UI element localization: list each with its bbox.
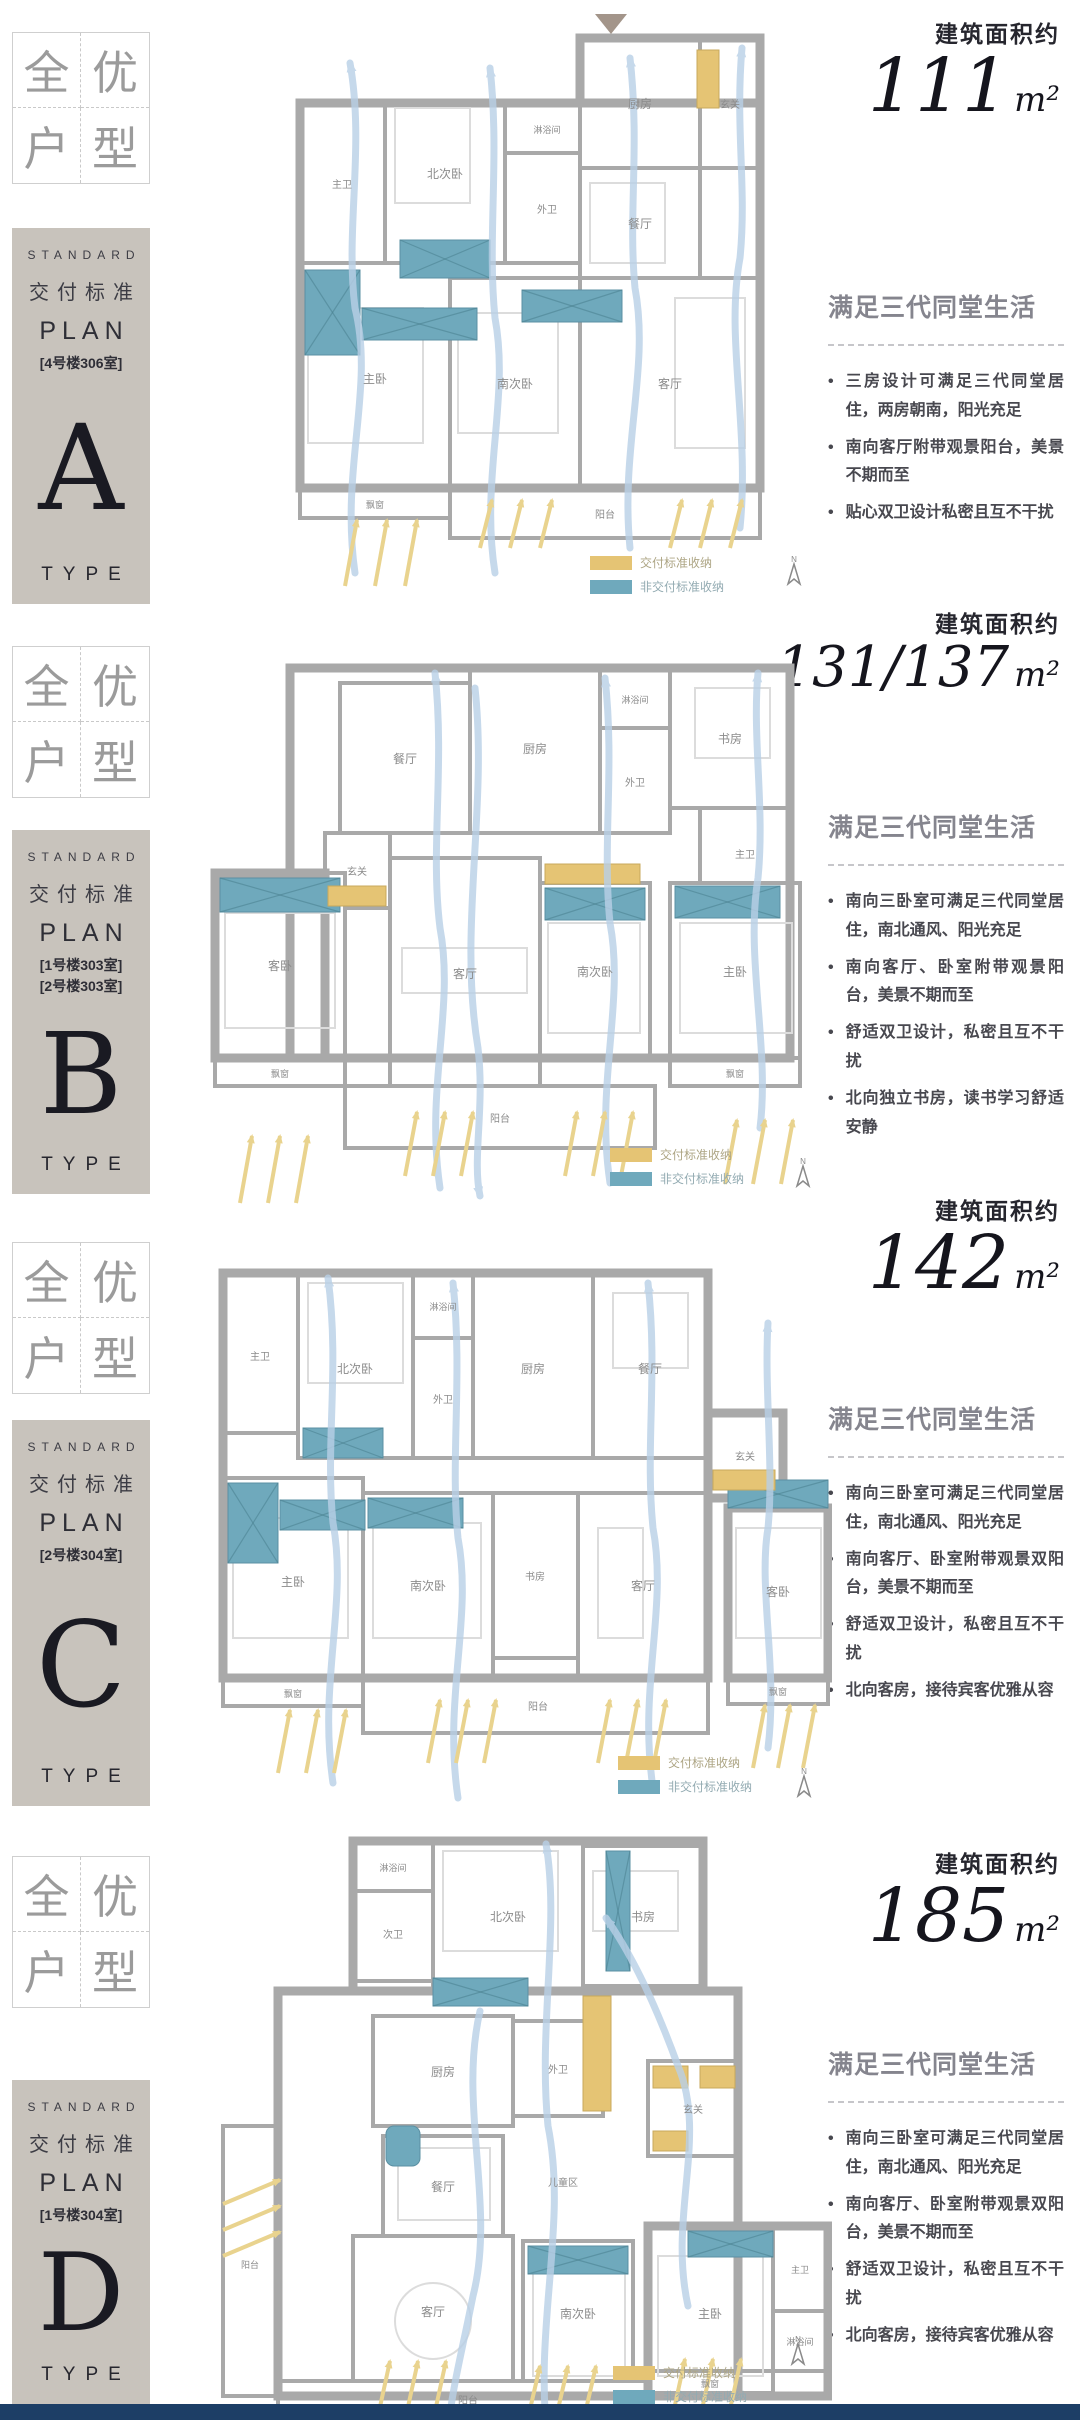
room-label-north-bedroom: 北次卧: [427, 167, 463, 181]
north-compass-icon: N: [788, 555, 800, 584]
room-label-bay-window: 飘窗: [769, 1686, 787, 1697]
legend-nonstandard-label: 非交付标准收纳: [660, 1171, 744, 1186]
list-item: •南向三卧室可满足三代同堂居住，南北通风、阳光充足: [828, 2125, 1064, 2183]
room-label-south-bedroom: 南次卧: [410, 1578, 446, 1593]
card-type-label: TYPE: [31, 564, 131, 586]
card-room-note: [4号楼306室]: [40, 354, 122, 373]
area-unit: m²: [1014, 80, 1060, 120]
legend-standard-swatch: [618, 1756, 660, 1770]
card-plan-label: PLAN: [33, 317, 128, 346]
list-item: •北向客房，接待宾客优雅从容: [828, 2322, 1064, 2351]
list-item: •南向客厅附带观景阳台，美景不期而至: [828, 434, 1064, 492]
list-item: •舒适双卫设计，私密且互不干扰: [828, 1019, 1064, 1077]
list-item: •南向三卧室可满足三代同堂居住，南北通风、阳光充足: [828, 888, 1064, 946]
bullet-list: •南向三卧室可满足三代同堂居住，南北通风、阳光充足 •南向客厅、卧室附带观景阳台…: [828, 888, 1064, 1142]
walls: [300, 38, 760, 538]
plan-legend: 交付标准收纳 非交付标准收纳: [618, 1755, 752, 1794]
quad-char: 优: [81, 647, 149, 722]
bullet-text: 南向三卧室可满足三代同堂居住，南北通风、阳光充足: [846, 2125, 1064, 2183]
bullet-list: •南向三卧室可满足三代同堂居住，南北通风、阳光充足 •南向客厅、卧室附带观景双阳…: [828, 1480, 1064, 1706]
type-letter: A: [38, 373, 123, 564]
legend-nonstandard-swatch: [613, 2390, 655, 2404]
room-label-master-bath: 主卫: [735, 849, 755, 861]
room-label-master-bedroom: 主卧: [723, 965, 747, 979]
list-item: •南向客厅、卧室附带观景双阳台，美景不期而至: [828, 2191, 1064, 2249]
room-label-study: 书房: [525, 1570, 545, 1583]
bullet-text: 南向三卧室可满足三代同堂居住，南北通风、阳光充足: [846, 1480, 1064, 1538]
legend-standard-label: 交付标准收纳: [660, 1147, 732, 1162]
bullet-text: 舒适双卫设计，私密且互不干扰: [846, 1019, 1064, 1077]
quad-char: 户: [13, 1318, 81, 1393]
bullet-list: •三房设计可满足三代同堂居住，两房朝南，阳光充足 •南向客厅附带观景阳台，美景不…: [828, 368, 1064, 528]
quad-char: 户: [13, 108, 81, 183]
footer-accent-bar: [0, 2404, 1080, 2420]
plan-legend: 交付标准收纳 非交付标准收纳: [590, 555, 724, 594]
room-label-foyer: 玄关: [347, 865, 367, 878]
card-standard-label: STANDARD: [21, 1440, 140, 1454]
room-label-study: 书房: [631, 1909, 655, 1924]
blurb-headline: 满足三代同堂生活: [828, 808, 1064, 844]
bullet-text: 舒适双卫设计，私密且互不干扰: [846, 2256, 1064, 2314]
legend-standard-swatch: [613, 2366, 655, 2380]
card-standard-label: STANDARD: [21, 2100, 140, 2114]
floor-plan-b: 餐厅 厨房 淋浴间 外卫 书房 主卫 玄关 客卧 客厅 南次卧 主卧 阳台 飘窗…: [140, 628, 830, 1212]
bullet-text: 北向客房，接待宾客优雅从容: [846, 1677, 1054, 1706]
list-item: •贴心双卫设计私密且互不干扰: [828, 499, 1064, 528]
bullet-list: •南向三卧室可满足三代同堂居住，南北通风、阳光充足 •南向客厅、卧室附带观景双阳…: [828, 2125, 1064, 2351]
area-value: 142: [868, 1220, 1009, 1306]
quad-char: 户: [13, 722, 81, 797]
legend-standard-label: 交付标准收纳: [663, 2365, 735, 2380]
floorplan-flyer: 全 优 户 型 STANDARD 交付标准 PLAN [4号楼306室] A T…: [0, 0, 1080, 2420]
room-label-balcony: 阳台: [528, 1700, 548, 1713]
card-delivery-label: 交付标准: [21, 276, 141, 305]
area-value: 111: [868, 43, 1009, 129]
room-label-guest-bedroom: 客卧: [268, 958, 292, 973]
card-room-note: [1号楼304室]: [40, 2206, 122, 2225]
room-label-study: 书房: [718, 731, 742, 746]
card-room-note: [1号楼303室]: [40, 956, 122, 975]
bullet-text: 贴心双卫设计私密且互不干扰: [846, 499, 1054, 528]
quad-char: 全: [13, 1243, 81, 1318]
card-delivery-label: 交付标准: [21, 1468, 141, 1497]
blurb-headline: 满足三代同堂生活: [828, 288, 1064, 324]
type-letter: C: [36, 1565, 126, 1766]
plan-legend: 交付标准收纳 非交付标准收纳: [610, 1147, 744, 1186]
floor-plan-c: 主卫 北次卧 淋浴间 外卫 厨房 餐厅 玄关 主卧 南次卧 书房 客厅 客卧 阳…: [128, 1228, 832, 1812]
room-label-balcony: 阳台: [595, 508, 615, 521]
room-label-shower: 淋浴间: [379, 1862, 406, 1873]
bullet-text: 三房设计可满足三代同堂居住，两房朝南，阳光充足: [846, 368, 1064, 426]
room-label-bay-window: 飘窗: [726, 1068, 744, 1079]
bullet-text: 南向客厅附带观景阳台，美景不期而至: [846, 434, 1064, 492]
legend-standard-swatch: [590, 556, 632, 570]
card-type-label: TYPE: [31, 2364, 131, 2386]
card-standard-label: STANDARD: [21, 850, 140, 864]
area-unit: m²: [1014, 1910, 1060, 1950]
room-label-shower: 淋浴间: [533, 124, 560, 135]
direction-triangle-icon: [595, 14, 627, 34]
type-letter: D: [38, 2225, 125, 2364]
card-plan-label: PLAN: [33, 919, 128, 948]
plan-card-b: STANDARD 交付标准 PLAN [1号楼303室] [2号楼303室] B…: [12, 830, 150, 1194]
plan-card-a: STANDARD 交付标准 PLAN [4号楼306室] A TYPE: [12, 228, 150, 604]
bullet-text: 北向客房，接待宾客优雅从容: [846, 2322, 1054, 2351]
room-label-dining: 餐厅: [393, 751, 417, 766]
room-label-south-bedroom: 南次卧: [497, 376, 533, 391]
list-item: •南向客厅、卧室附带观景双阳台，美景不期而至: [828, 1546, 1064, 1604]
list-item: •舒适双卫设计，私密且互不干扰: [828, 2256, 1064, 2314]
legend-nonstandard-swatch: [618, 1780, 660, 1794]
dashed-divider: [828, 1456, 1064, 1458]
card-delivery-label: 交付标准: [21, 2128, 141, 2157]
room-label-north-bedroom: 北次卧: [337, 1362, 373, 1376]
room-label-guest-bath: 外卫: [625, 777, 645, 789]
room-label-bay-window: 飘窗: [284, 1688, 302, 1699]
room-label-foyer: 玄关: [720, 98, 740, 111]
bullet-text: 舒适双卫设计，私密且互不干扰: [846, 1611, 1064, 1669]
dashed-divider: [828, 864, 1064, 866]
room-label-master-bath: 主卫: [332, 179, 352, 191]
bullet-text: 南向三卧室可满足三代同堂居住，南北通风、阳光充足: [846, 888, 1064, 946]
blurb-a: 满足三代同堂生活 •三房设计可满足三代同堂居住，两房朝南，阳光充足 •南向客厅附…: [828, 288, 1064, 536]
legend-standard-label: 交付标准收纳: [668, 1755, 740, 1770]
quad-char: 全: [13, 33, 81, 108]
list-item: •三房设计可满足三代同堂居住，两房朝南，阳光充足: [828, 368, 1064, 426]
bullet-text: 北向独立书房，读书学习舒适安静: [846, 1085, 1064, 1143]
blurb-headline: 满足三代同堂生活: [828, 1400, 1064, 1436]
room-label-master-bedroom: 主卧: [363, 372, 387, 386]
card-standard-label: STANDARD: [21, 248, 140, 262]
room-label-balcony: 阳台: [241, 2259, 259, 2270]
floor-plan-a: 主卫 北次卧 淋浴间 外卫 厨房 玄关 餐厅 主卧 南次卧 客厅 阳台 飘窗 交…: [150, 8, 830, 600]
room-label-master-bedroom: 主卧: [281, 1575, 305, 1589]
dashed-divider: [828, 344, 1064, 346]
legend-nonstandard-label: 非交付标准收纳: [668, 1779, 752, 1794]
room-label-kitchen: 厨房: [431, 2064, 455, 2079]
type-letter: B: [40, 996, 122, 1154]
room-label-kitchen: 厨房: [628, 96, 652, 111]
north-compass-icon: N: [797, 1157, 809, 1186]
list-item: •南向客厅、卧室附带观景阳台，美景不期而至: [828, 954, 1064, 1012]
room-label-dining: 餐厅: [638, 1361, 662, 1376]
card-type-label: TYPE: [31, 1766, 131, 1788]
card-room-note: [2号楼303室]: [40, 977, 122, 996]
card-plan-label: PLAN: [33, 1509, 128, 1538]
room-label-master-bath: 主卫: [250, 1351, 270, 1363]
room-label-guest-bath: 外卫: [537, 204, 557, 216]
list-item: •北向独立书房，读书学习舒适安静: [828, 1085, 1064, 1143]
quad-char: 优: [81, 33, 149, 108]
legend-nonstandard-label: 非交付标准收纳: [640, 579, 724, 594]
storage-standard: [713, 1470, 775, 1490]
blurb-headline: 满足三代同堂生活: [828, 2045, 1064, 2081]
quad-char: 型: [81, 108, 149, 183]
bullet-text: 南向客厅、卧室附带观景双阳台，美景不期而至: [846, 2191, 1064, 2249]
room-label-kitchen: 厨房: [523, 741, 547, 756]
quad-char: 全: [13, 1857, 81, 1932]
area-unit: m²: [1014, 655, 1060, 695]
quality-badge: 全 优 户 型: [12, 646, 150, 798]
room-label-second-bath: 次卫: [383, 1928, 403, 1941]
room-label-foyer: 玄关: [683, 2103, 703, 2116]
quad-char: 型: [81, 722, 149, 797]
list-item: •南向三卧室可满足三代同堂居住，南北通风、阳光充足: [828, 1480, 1064, 1538]
dashed-divider: [828, 2101, 1064, 2103]
floor-plan-d: 淋浴间 次卫 北次卧 书房 厨房 外卫 玄关 餐厅 儿童区 客厅 南次卧 主卧 …: [128, 1826, 832, 2420]
card-plan-label: PLAN: [33, 2169, 128, 2198]
room-label-bay-window: 飘窗: [271, 1068, 289, 1079]
room-label-living: 客厅: [421, 2304, 445, 2319]
storage-standard: [697, 50, 719, 108]
list-item: •舒适双卫设计，私密且互不干扰: [828, 1611, 1064, 1669]
room-label-north-bedroom: 北次卧: [490, 1910, 526, 1924]
card-room-note: [2号楼304室]: [40, 1546, 122, 1565]
room-label-shower: 淋浴间: [621, 694, 648, 705]
area-unit: m²: [1014, 1257, 1060, 1297]
blurb-c: 满足三代同堂生活 •南向三卧室可满足三代同堂居住，南北通风、阳光充足 •南向客厅…: [828, 1400, 1064, 1714]
blurb-d: 满足三代同堂生活 •南向三卧室可满足三代同堂居住，南北通风、阳光充足 •南向客厅…: [828, 2045, 1064, 2359]
area-value: 185: [868, 1873, 1009, 1959]
walls: [223, 1841, 828, 2416]
card-type-label: TYPE: [31, 1154, 131, 1176]
legend-nonstandard-swatch: [590, 580, 632, 594]
room-label-master-bath: 主卫: [791, 2264, 809, 2275]
room-label-guest-bath: 外卫: [433, 1394, 453, 1406]
quad-char: 户: [13, 1932, 81, 2007]
room-label-kids-zone: 儿童区: [548, 2176, 578, 2189]
room-label-south-bedroom: 南次卧: [577, 964, 613, 979]
room-label-bay-window: 飘窗: [366, 499, 384, 510]
room-label-guest-bath: 外卫: [548, 2064, 568, 2076]
room-label-south-bedroom: 南次卧: [560, 2306, 596, 2321]
bullet-text: 南向客厅、卧室附带观景双阳台，美景不期而至: [846, 1546, 1064, 1604]
room-label-living: 客厅: [453, 966, 477, 981]
legend-nonstandard-swatch: [610, 1172, 652, 1186]
legend-standard-label: 交付标准收纳: [640, 555, 712, 570]
blurb-b: 满足三代同堂生活 •南向三卧室可满足三代同堂居住，南北通风、阳光充足 •南向客厅…: [828, 808, 1064, 1150]
list-item: •北向客房，接待宾客优雅从容: [828, 1677, 1064, 1706]
room-label-shower: 淋浴间: [429, 1301, 456, 1312]
quality-badge: 全 优 户 型: [12, 32, 150, 184]
legend-standard-swatch: [610, 1148, 652, 1162]
bullet-text: 南向客厅、卧室附带观景阳台，美景不期而至: [846, 954, 1064, 1012]
room-label-living: 客厅: [631, 1578, 655, 1593]
room-label-guest-bedroom: 客卧: [766, 1584, 790, 1599]
north-compass-icon: N: [798, 1767, 810, 1796]
legend-nonstandard-label: 非交付标准收纳: [663, 2389, 747, 2404]
room-label-kitchen: 厨房: [521, 1361, 545, 1376]
card-delivery-label: 交付标准: [21, 878, 141, 907]
room-label-foyer: 玄关: [735, 1450, 755, 1463]
quad-char: 全: [13, 647, 81, 722]
room-label-dining: 餐厅: [431, 2179, 455, 2194]
room-label-dining: 餐厅: [628, 216, 652, 231]
room-label-balcony: 阳台: [490, 1112, 510, 1125]
room-label-living: 客厅: [658, 376, 682, 391]
room-label-master-bedroom: 主卧: [698, 2307, 722, 2321]
